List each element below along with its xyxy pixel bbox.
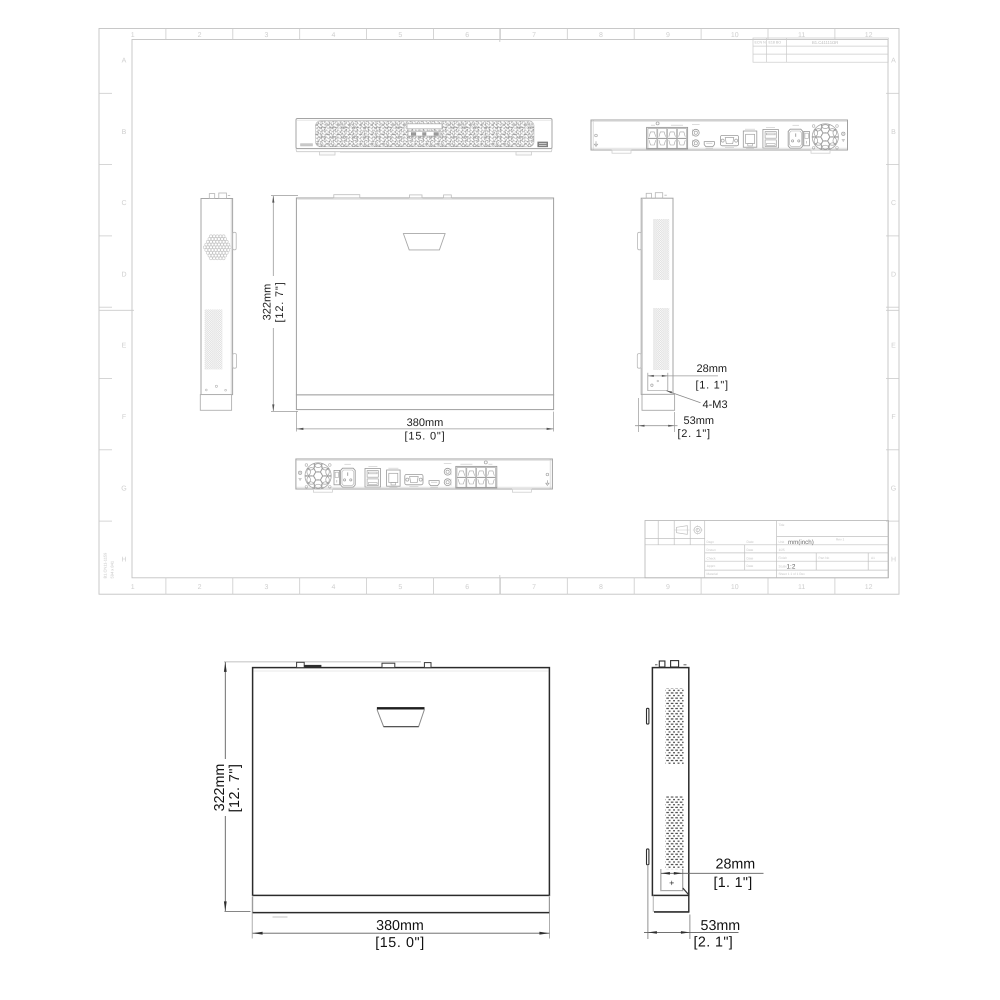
svg-text:G: G	[891, 485, 896, 492]
svg-text:E: E	[122, 343, 127, 350]
svg-text:[12. 7"]: [12. 7"]	[274, 282, 286, 323]
svg-text:[2. 1"]: [2. 1"]	[694, 935, 734, 951]
svg-text:28mm: 28mm	[716, 857, 756, 873]
svg-text:4: 4	[331, 584, 335, 591]
svg-text:8: 8	[599, 32, 603, 39]
svg-text:Date: Date	[747, 556, 754, 560]
svg-text:322mm: 322mm	[261, 284, 273, 321]
svg-text:Drawn: Drawn	[707, 548, 716, 552]
svg-text:B1.CN11-1159: B1.CN11-1159	[103, 552, 108, 579]
svg-text:12: 12	[865, 584, 873, 591]
svg-text:1: 1	[131, 584, 135, 591]
svg-text:11: 11	[798, 584, 805, 591]
svg-text:E: E	[891, 343, 896, 350]
svg-text:Date: Date	[747, 564, 754, 568]
svg-text:380mm: 380mm	[376, 918, 424, 934]
svg-text:F: F	[891, 414, 895, 421]
svg-text:A: A	[891, 58, 896, 65]
svg-text:2: 2	[198, 584, 202, 591]
svg-text:6: 6	[465, 32, 469, 39]
svg-text:28mm: 28mm	[697, 363, 728, 375]
svg-text:Appro: Appro	[707, 564, 716, 568]
svg-text:594 x 841: 594 x 841	[110, 560, 115, 578]
svg-text:8: 8	[599, 584, 603, 591]
svg-text:1: 1	[131, 32, 135, 39]
svg-text:6: 6	[465, 584, 469, 591]
svg-text:Part No: Part No	[819, 556, 830, 560]
svg-text:F: F	[122, 414, 126, 421]
svg-text:380mm: 380mm	[407, 417, 444, 429]
svg-text:B: B	[891, 129, 896, 136]
svg-text:9: 9	[666, 32, 670, 39]
svg-text:C: C	[891, 200, 896, 207]
svg-text:2: 2	[198, 32, 202, 39]
svg-text:mm(inch): mm(inch)	[788, 539, 814, 546]
svg-text:3: 3	[265, 584, 269, 591]
svg-text:4: 4	[331, 32, 335, 39]
svg-text:5: 5	[398, 584, 402, 591]
svg-text:322mm: 322mm	[212, 764, 228, 812]
svg-text:[1. 1"]: [1. 1"]	[696, 379, 729, 391]
svg-text:Unit: Unit	[779, 540, 785, 544]
svg-text:Title: Title	[779, 523, 785, 527]
svg-text:3: 3	[265, 32, 269, 39]
svg-text:D: D	[121, 271, 126, 278]
svg-text:1:2: 1:2	[787, 563, 796, 570]
svg-text:5: 5	[398, 32, 402, 39]
svg-text:[15. 0"]: [15. 0"]	[405, 431, 446, 443]
svg-text:10: 10	[731, 32, 739, 39]
svg-text:E18 BO: E18 BO	[769, 41, 782, 45]
svg-text:G: G	[121, 485, 126, 492]
svg-text:Check: Check	[707, 556, 716, 560]
svg-text:53mm: 53mm	[684, 415, 715, 427]
svg-text:[2. 1"]: [2. 1"]	[678, 428, 711, 440]
svg-text:Date: Date	[747, 548, 754, 552]
svg-text:ECN N: ECN N	[755, 41, 767, 45]
svg-text:4-M3: 4-M3	[703, 399, 728, 411]
svg-text:H: H	[121, 557, 126, 564]
svg-text:B: B	[122, 129, 127, 136]
svg-text:9: 9	[666, 584, 670, 591]
svg-text:A1: A1	[871, 556, 875, 560]
svg-text:A: A	[122, 58, 127, 65]
svg-text:Rev 1: Rev 1	[836, 538, 845, 542]
svg-text:Date: Date	[747, 540, 754, 544]
svg-text:7: 7	[532, 32, 536, 39]
svg-text:10: 10	[731, 584, 739, 591]
svg-text:H: H	[891, 557, 896, 564]
svg-text:C: C	[121, 200, 126, 207]
svg-text:Sheet 1 1 of 1 Rev: Sheet 1 1 of 1 Rev	[779, 572, 806, 576]
svg-text:7: 7	[532, 584, 536, 591]
svg-text:[1. 1"]: [1. 1"]	[714, 875, 753, 891]
svg-text:B1.C41111OR: B1.C41111OR	[812, 40, 838, 45]
svg-text:D: D	[891, 271, 896, 278]
svg-text:1/25: 1/25	[779, 548, 785, 552]
svg-text:Finish: Finish	[779, 556, 788, 560]
svg-text:[15. 0"]: [15. 0"]	[375, 935, 425, 951]
svg-text:53mm: 53mm	[701, 918, 741, 934]
svg-text:[12. 7"]: [12. 7"]	[227, 764, 243, 813]
svg-text:Dsgn: Dsgn	[707, 540, 715, 544]
svg-text:Material: Material	[707, 572, 719, 576]
